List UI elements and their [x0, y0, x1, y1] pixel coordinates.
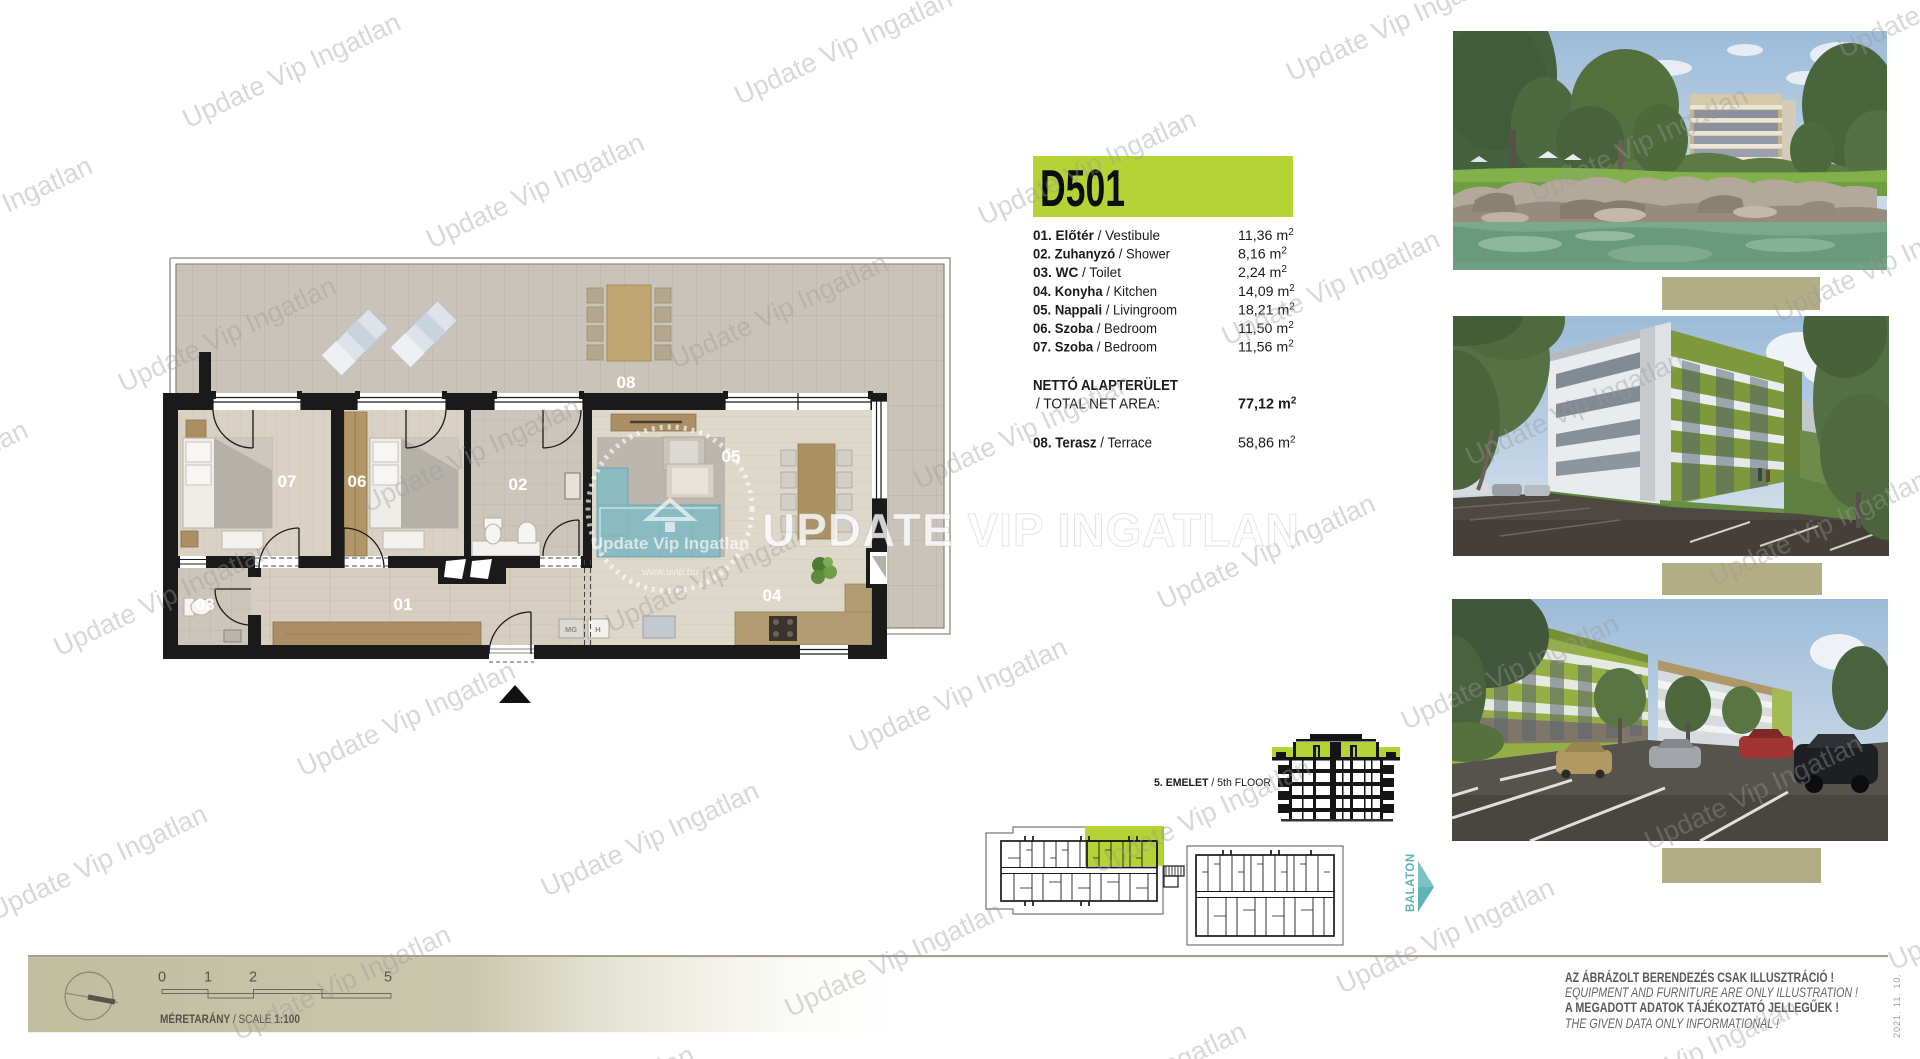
svg-text:Update Vip Ingatlan: Update Vip Ingatlan [0, 151, 97, 278]
svg-text:11,36 m2: 11,36 m2 [1238, 227, 1294, 244]
svg-text:BALATON: BALATON [1405, 853, 1417, 912]
svg-text:02: 02 [509, 475, 528, 494]
svg-text:1: 1 [204, 970, 212, 986]
svg-text:05. Nappali / Livingroom: 05. Nappali / Livingroom [1033, 302, 1177, 318]
svg-text:77,12 m2: 77,12 m2 [1238, 396, 1297, 413]
svg-text:8,16 m2: 8,16 m2 [1238, 246, 1287, 263]
svg-text:www.uvip.hu: www.uvip.hu [641, 567, 698, 578]
svg-text:Update Vip Ingatlan: Update Vip Ingatlan [591, 534, 749, 553]
svg-text:04. Konyha / Kitchen: 04. Konyha / Kitchen [1033, 284, 1157, 300]
svg-text:Update Vip Ingatlan: Update Vip Ingatlan [422, 127, 649, 254]
svg-text:Update Vip Ingatlan: Update Vip Ingatlan [1088, 752, 1315, 879]
svg-text:Update Vip Ingatlan: Update Vip Ingatlan [0, 799, 212, 926]
svg-text:Update Vip Ingatlan: Update Vip Ingatlan [1884, 849, 1920, 976]
svg-text:04: 04 [763, 586, 782, 605]
svg-text:Update Vip Ingatlan: Update Vip Ingatlan [293, 655, 520, 782]
svg-text:2021. 11. 10.: 2021. 11. 10. [1892, 973, 1902, 1038]
svg-text:07. Szoba / Bedroom: 07. Szoba / Bedroom [1033, 340, 1157, 356]
svg-text:EQUIPMENT AND FURNITURE ARE ON: EQUIPMENT AND FURNITURE ARE ONLY ILLUSTR… [1565, 985, 1858, 1000]
svg-text:H: H [595, 625, 600, 634]
svg-text:58,86 m2: 58,86 m2 [1238, 435, 1296, 452]
svg-text:Update Vip Ingatlan: Update Vip Ingatlan [536, 775, 763, 902]
svg-text:Update Vip Ingatlan: Update Vip Ingatlan [178, 7, 405, 134]
svg-text:03. WC / Toilet: 03. WC / Toilet [1033, 265, 1121, 281]
svg-text:07: 07 [278, 472, 297, 491]
svg-text:MG: MG [565, 625, 577, 634]
svg-text:Update Vip Ingatlan: Update Vip Ingatlan [730, 0, 957, 111]
svg-text:02. Zuhanyzó / Shower: 02. Zuhanyzó / Shower [1033, 247, 1170, 263]
svg-text:2: 2 [249, 970, 257, 986]
svg-text:Update Vip Ingatlan: Update Vip Ingatlan [1024, 1016, 1251, 1059]
svg-text:UPDATE VIP INGATLAN: UPDATE VIP INGATLAN [762, 504, 1300, 556]
svg-text:01. Előtér / Vestibule: 01. Előtér / Vestibule [1033, 228, 1160, 244]
svg-text:Update Vip Ingatlan: Update Vip Ingatlan [0, 415, 32, 542]
svg-text:08. Terasz / Terrace: 08. Terasz / Terrace [1033, 436, 1152, 452]
svg-text:AZ ÁBRÁZOLT BERENDEZÉS CSAK IL: AZ ÁBRÁZOLT BERENDEZÉS CSAK ILLUSZTRÁCIÓ… [1565, 968, 1834, 985]
svg-text:2,24 m2: 2,24 m2 [1238, 264, 1287, 281]
svg-text:01: 01 [394, 595, 413, 614]
svg-text:Update Vip Ingatlan: Update Vip Ingatlan [1332, 872, 1559, 999]
svg-text:06. Szoba / Bedroom: 06. Szoba / Bedroom [1033, 321, 1157, 337]
svg-text:08: 08 [617, 373, 636, 392]
svg-text:Update Vip Ingatlan: Update Vip Ingatlan [472, 1039, 699, 1059]
svg-text:0: 0 [158, 970, 166, 986]
